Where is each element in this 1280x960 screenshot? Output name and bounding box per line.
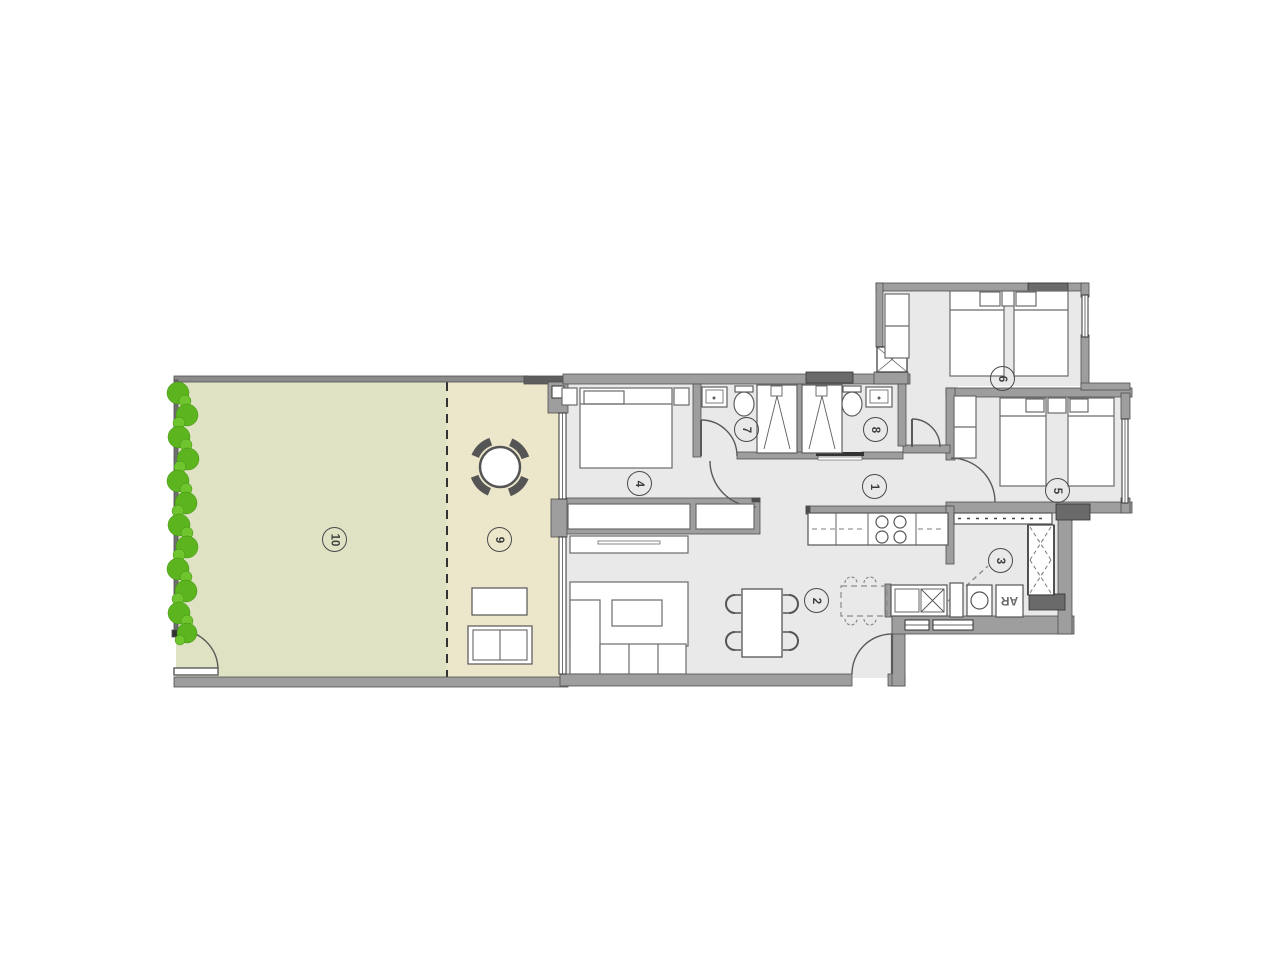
room-label-text: 4 [634,480,646,486]
room-label-text: 6 [997,375,1009,381]
pillow [1070,399,1088,412]
nightstand [562,388,577,405]
room-label-text: 5 [1052,487,1064,493]
ar-unit-label: AR [996,585,1023,617]
garden-gate-leaf [174,668,218,675]
room-label-garden: 10 [322,527,347,552]
garden-floor [176,380,447,682]
room-label-text: 7 [741,426,753,432]
coffee-table [612,600,662,626]
terrace-table [472,588,527,615]
pillow [584,391,624,404]
room-label-text: 2 [811,597,823,603]
sofa-chaise [570,600,600,674]
room-label-entry-laundry: 3 [988,548,1013,573]
room-label-bathroom-1: 7 [734,417,759,442]
room-label-hallway: 1 [862,474,887,499]
nightstand [1002,291,1014,306]
room-label-text: 10 [328,533,340,546]
entry-closet [1028,525,1054,595]
room-label-living-dining: 2 [804,588,829,613]
cooktop-burner [876,516,888,528]
pillow [1016,292,1036,306]
room-label-bedroom-3: 6 [990,366,1015,391]
pillow [1026,399,1044,412]
room-label-bathroom-2: 8 [863,417,888,442]
toilet [842,392,862,416]
wardrobe [696,504,754,529]
washer-drum [971,592,988,609]
cabinet [950,583,963,617]
room-label-text: 9 [494,536,506,542]
room-label-text: 3 [995,557,1007,563]
room-label-bedroom-2: 5 [1045,478,1070,503]
sofa-seats [600,644,686,674]
toilet-tank [735,386,753,392]
cooktop-burner [894,516,906,528]
pillow [980,292,1000,306]
wardrobe [568,504,690,529]
toilet-tank [843,386,861,392]
room-label-text: 8 [870,426,882,432]
round-table [480,447,520,487]
cooktop-burner [894,531,906,543]
sideboard [570,536,688,553]
toilet [734,392,754,416]
room-label-text: 1 [869,483,881,489]
nightstand [1048,398,1066,413]
floor-plan: 1 2 3 4 5 6 7 8 9 10 AR [0,0,1280,960]
room-label-bedroom-main: 4 [627,471,652,496]
nightstand [674,388,689,405]
dining-table [742,589,782,657]
cooktop-burner [876,531,888,543]
room-label-terrace: 9 [487,527,512,552]
